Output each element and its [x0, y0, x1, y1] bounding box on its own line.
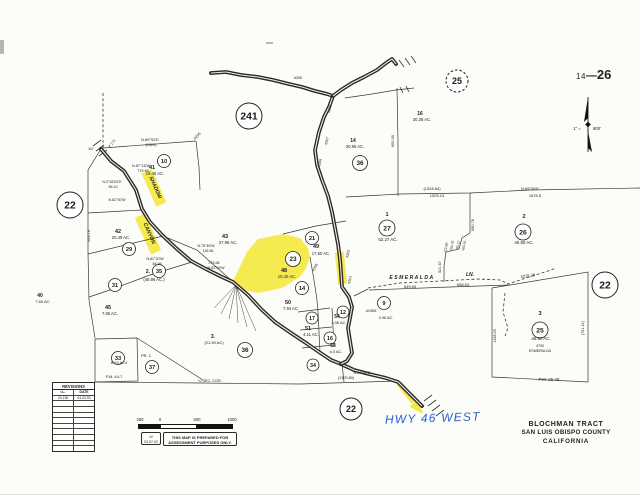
map-label: #201: [347, 276, 352, 285]
map-number-prefix: 14: [576, 72, 586, 81]
parcel-marker-number: 16: [327, 336, 333, 342]
parcel-marker-number: 241: [240, 112, 258, 123]
map-label: ESMERALDA: [529, 349, 552, 353]
dashed-boundary: [503, 293, 508, 336]
parcel-boundary: [89, 262, 192, 297]
parcel-boundary: [369, 285, 510, 290]
map-label: #1955: [366, 309, 377, 313]
revisions-cell: 20-138: [53, 396, 74, 401]
state-title: CALIFORNIA: [505, 438, 627, 446]
revisions-cell: I.L.: [53, 390, 74, 395]
map-label: 779.80: [137, 169, 149, 173]
parcel-marker-number: 12: [340, 310, 346, 316]
revisions-cell: [74, 429, 94, 434]
map-label: #202: [345, 250, 350, 259]
parcel-boundary: [95, 381, 397, 384]
hatch-tick: [93, 140, 101, 146]
parcel-marker-number: 22: [346, 404, 356, 414]
parcel-marker-number: 14: [299, 286, 306, 292]
map-label: 7.60 AC.: [35, 299, 50, 304]
road-casing: [333, 59, 396, 96]
north-arrow-top-blade: [584, 97, 588, 122]
scale-bar-label: 250: [137, 417, 144, 422]
revisions-cell: [53, 441, 74, 446]
scale-bar-label: 500: [194, 417, 201, 422]
parcel-boundary: [346, 188, 640, 197]
revisions-cell: [74, 435, 94, 440]
parcel-marker-number: 23: [289, 256, 297, 263]
revisions-title: REVISIONS: [53, 383, 94, 390]
map-label: N.81°30'W: [146, 257, 164, 261]
revisions-cell: [74, 424, 94, 429]
map-label: (21.59 AC): [204, 340, 224, 345]
revisions-table: REVISIONS I.L.DATE20-13803-23-93: [52, 382, 95, 452]
map-label: 92.12: [455, 240, 461, 249]
parcel-marker-number: 25: [452, 76, 462, 86]
parcel-marker-number: 27: [383, 225, 391, 232]
map-label: N.82°30'W: [108, 198, 126, 202]
map-number-main: 26: [597, 67, 611, 82]
north-arrow-bottom-blade: [588, 131, 592, 152]
hatch-tick: [399, 60, 404, 67]
survey-fan-line: [221, 285, 236, 314]
map-label: 649.65: [404, 284, 417, 289]
assessment-note: THIS MAP IS PREPARED FOR ASSESSMENT PURP…: [163, 432, 237, 446]
map-label: N.87°16'W: [132, 164, 150, 168]
map-label: 6.03 AC±: [111, 360, 128, 365]
map-label: N.0°35'00"E: [102, 180, 122, 184]
revisions-cell: [74, 413, 94, 418]
parcel-marker-number: 34: [310, 363, 316, 369]
tract-title: BLOCHMAN TRACT: [505, 420, 627, 429]
map-label: 690.76: [471, 219, 475, 231]
parcel-marker-number: 21: [309, 236, 315, 242]
map-label: 49: [313, 244, 319, 250]
map-label: 84.99: [153, 262, 162, 266]
parcel-boundary: [345, 90, 396, 98]
map-label: LN.: [466, 272, 474, 278]
map-label: 1" =: [573, 126, 581, 131]
parcel-marker-number: 22: [64, 201, 76, 212]
revisions-cell: [53, 446, 74, 451]
map-label: N.89°52'E: [141, 137, 159, 142]
revisions-cell: [74, 418, 94, 423]
parcel-marker-number: 37: [149, 365, 155, 371]
map-label: 1576.5: [529, 193, 542, 198]
parcel-boundary: [88, 149, 101, 338]
map-label: N.84°00'E: [353, 371, 370, 375]
map-label: (46.96 AC.): [143, 277, 165, 282]
parcel-marker-number: 35: [156, 269, 162, 275]
revisions-cell: [53, 424, 74, 429]
map-label: 1328.29: [493, 329, 497, 343]
map-label: N.83°45'W: [207, 266, 225, 270]
map-label: 443.76: [87, 230, 91, 242]
map-label: #235: [193, 132, 202, 141]
map-label: 56.10: [109, 185, 118, 189]
scale-bar-segment: [160, 424, 197, 429]
map-label: 658.53: [457, 282, 470, 287]
map-label: #206: [317, 159, 322, 168]
map-label: (1300.80): [338, 376, 355, 380]
revisions-cell: [53, 401, 74, 406]
hatch-tick: [424, 395, 432, 401]
scale-bar-segment: [197, 424, 233, 429]
revisions-cell: [74, 446, 94, 451]
survey-fan-line: [214, 285, 236, 308]
parcel-marker-number: 36: [241, 347, 249, 354]
map-label: ¼ SEC. COR.: [198, 379, 222, 383]
map-label: 115.58: [203, 249, 214, 253]
map-label: 46.80 AC.: [514, 240, 533, 245]
revisions-cell: [74, 401, 94, 406]
map-label: 17.50 AC.: [312, 251, 330, 256]
county-title: SAN LUIS OBISPO COUNTY: [505, 429, 627, 437]
map-label: #208: [327, 105, 332, 114]
scale-bar-label: 1000: [227, 417, 236, 422]
map-label: (1328.84): [423, 186, 441, 191]
parcel-marker-number: 10: [161, 159, 167, 165]
hatch-tick: [411, 56, 416, 63]
assessor-map-page: 2222222524110293536313337232114272625369…: [0, 0, 640, 495]
revisions-row: [53, 446, 94, 451]
parcel-boundary: [137, 338, 203, 380]
revisions-cell: [53, 407, 74, 412]
parcel-marker-number: 31: [112, 283, 118, 289]
parcel-boundary: [444, 193, 470, 282]
map-label: 46.80 AC.: [531, 336, 550, 341]
map-label: 600.30: [391, 135, 395, 147]
parcel-boundary: [196, 141, 200, 190]
revisions-cell: [53, 413, 74, 418]
north-arrow: [584, 97, 592, 152]
map-label: 4.06 AC.: [331, 320, 346, 325]
map-number-dash: —: [586, 70, 597, 82]
map-label: ESMERALDA: [389, 275, 434, 281]
map-label: 37.96 AC.: [219, 240, 237, 245]
parcel-marker-number: 9: [382, 301, 385, 307]
map-label: #299: [311, 263, 318, 272]
map-label: 4.11 AC.: [303, 332, 319, 337]
parcel-marker-number: 29: [126, 247, 132, 253]
map-label: 163.34: [461, 240, 467, 251]
map-label: N.89°30'E: [521, 186, 539, 191]
revisions-cell: DATE: [74, 390, 94, 395]
parcel-boundary: [354, 289, 368, 296]
scale-bar-segment: [138, 424, 160, 429]
map-label: 2: [522, 214, 525, 220]
drafter-stamp: JV 03-07-02: [141, 432, 161, 445]
map-label: #306: [294, 76, 302, 80]
parcel-marker-number: 26: [519, 229, 527, 236]
map-label: 4790: [536, 344, 544, 348]
north-arrow-midpoint: [585, 122, 591, 128]
map-label: 1029.14: [430, 193, 445, 198]
map-label: 800': [593, 126, 601, 131]
map-label: 10.40 AC.: [278, 274, 296, 279]
map-label: N.76°45'W: [197, 244, 215, 248]
revisions-cell: [53, 418, 74, 423]
parcel-marker-number: 25: [536, 327, 544, 334]
parcel-marker-number: 22: [599, 281, 611, 292]
map-label: 1: [385, 212, 388, 218]
map-label: 30.96 AC.: [346, 144, 364, 149]
map-label: 273.68: [209, 261, 220, 265]
map-label: 2.: [146, 269, 151, 275]
parcel-marker-number: 36: [356, 160, 364, 167]
map-label: 40': [88, 146, 93, 151]
map-label: P.M. 44-7: [106, 374, 124, 379]
parcel-boundary: [88, 210, 142, 213]
boundary-lines-layer: [88, 56, 640, 416]
map-label: 104.76: [449, 240, 455, 251]
parcel-boundary: [298, 308, 330, 312]
hatch-tick: [405, 58, 410, 65]
map-label: 1015.28: [520, 272, 536, 279]
map-label: 4.0 AC.: [329, 349, 342, 354]
drafter-date: 03-07-02: [142, 440, 160, 445]
map-label: #207: [324, 137, 329, 146]
map-label: 521.67: [438, 261, 442, 273]
map-label: 3: [538, 311, 541, 317]
scan-artifact: [266, 42, 273, 44]
map-label: (751.21): [581, 320, 585, 335]
map-label: 30.36 AC.: [413, 117, 431, 122]
revisions-cell: [74, 441, 94, 446]
map-label: 52.27 AC.: [378, 237, 397, 242]
revisions-cell: [74, 407, 94, 412]
scale-bar-label: 0: [159, 417, 161, 422]
map-label: (1320): [146, 143, 158, 147]
parcel-boundary: [396, 88, 414, 90]
hatch-tick: [400, 87, 403, 93]
title-block: BLOCHMAN TRACT SAN LUIS OBISPO COUNTY CA…: [505, 420, 627, 446]
revisions-cell: [53, 435, 74, 440]
map-label: PR. 1: [141, 353, 152, 358]
map-sheet-number: 14—26: [576, 66, 611, 84]
map-label: P.M. 26-48: [539, 377, 560, 382]
hatch-tick: [428, 400, 436, 406]
revisions-cell: 03-23-93: [74, 396, 94, 401]
map-label: 20.49 AC.: [112, 235, 130, 240]
revisions-cell: [53, 429, 74, 434]
parcel-boundary: [397, 88, 398, 196]
map-label: 7.65 AC.: [102, 311, 118, 316]
scan-artifact: [0, 40, 4, 54]
map-label: 7.94 AC.: [283, 306, 299, 311]
assessment-note-text: THIS MAP IS PREPARED FOR ASSESSMENT PURP…: [168, 435, 231, 446]
survey-fan-line: [229, 285, 236, 319]
map-label: 0.96 AC.: [379, 316, 394, 320]
parcel-marker-number: 17: [309, 316, 315, 322]
